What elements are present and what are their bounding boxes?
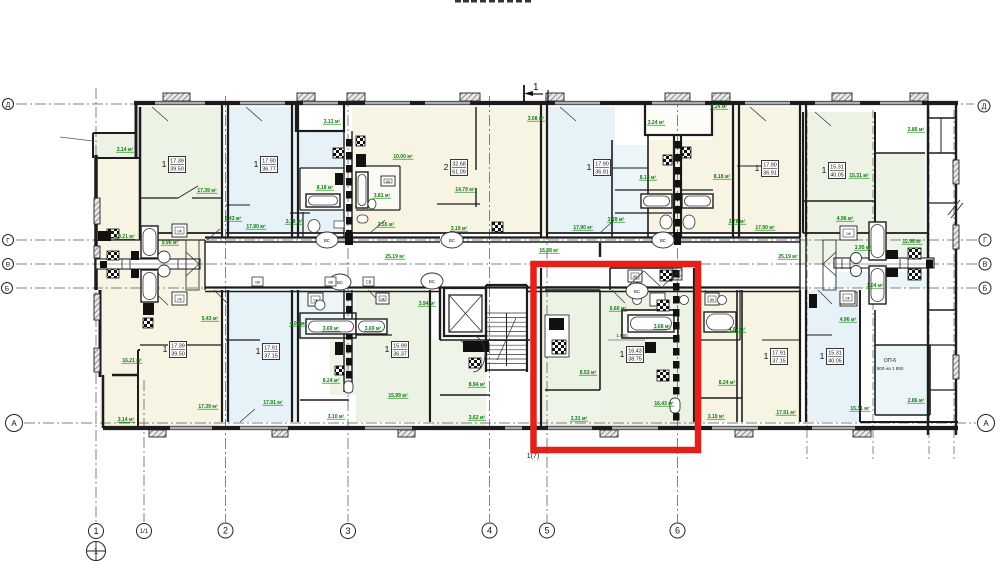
svg-text:39.50: 39.50 <box>170 167 184 173</box>
svg-text:17.91: 17.91 <box>264 346 278 352</box>
svg-text:17.90: 17.90 <box>763 163 777 169</box>
svg-text:Б: Б <box>983 286 988 293</box>
svg-text:15.31: 15.31 <box>828 351 842 357</box>
svg-text:61.09: 61.09 <box>452 170 466 176</box>
svg-text:1(7): 1(7) <box>527 453 539 460</box>
svg-text:ВС: ВС <box>660 238 667 243</box>
svg-text:1: 1 <box>533 82 539 93</box>
svg-text:1: 1 <box>620 349 625 359</box>
svg-text:ВС: ВС <box>449 238 456 243</box>
svg-text:Г: Г <box>6 237 10 244</box>
svg-text:36.37: 36.37 <box>393 352 407 358</box>
svg-text:15.31: 15.31 <box>830 165 844 171</box>
svg-text:ОП-6: ОП-6 <box>884 358 896 364</box>
svg-text:1: 1 <box>822 165 827 175</box>
svg-text:32.68: 32.68 <box>452 162 466 168</box>
svg-text:ок: ок <box>177 228 181 233</box>
svg-text:5: 5 <box>544 526 549 536</box>
svg-text:ок: ок <box>177 296 181 301</box>
svg-text:ок: ок <box>710 297 714 302</box>
svg-text:А: А <box>11 419 17 428</box>
svg-text:17.39: 17.39 <box>171 344 185 350</box>
svg-text:ок: ок <box>845 295 849 300</box>
svg-text:А: А <box>983 419 989 428</box>
svg-text:ок: ок <box>846 231 850 236</box>
svg-text:17.39: 17.39 <box>170 159 184 165</box>
svg-text:2: 2 <box>444 162 449 172</box>
svg-text:39.50: 39.50 <box>171 352 185 358</box>
svg-text:900 на 1 550: 900 на 1 550 <box>877 366 904 371</box>
svg-text:6: 6 <box>675 526 680 536</box>
svg-text:36.91: 36.91 <box>763 171 777 177</box>
svg-text:40.05: 40.05 <box>830 173 844 179</box>
svg-text:40.05: 40.05 <box>828 359 842 365</box>
svg-text:ВС: ВС <box>337 280 344 285</box>
svg-text:1: 1 <box>256 346 261 356</box>
svg-text:ов: ов <box>255 280 260 285</box>
svg-text:17.90: 17.90 <box>595 162 609 168</box>
svg-text:ов: ов <box>328 280 333 285</box>
svg-text:3: 3 <box>345 526 350 536</box>
svg-text:1: 1 <box>764 351 769 361</box>
svg-text:1: 1 <box>755 163 760 173</box>
svg-text:В: В <box>983 262 988 269</box>
svg-text:17.90: 17.90 <box>262 159 276 165</box>
svg-text:1: 1 <box>94 547 99 556</box>
svg-text:36.91: 36.91 <box>595 170 609 176</box>
svg-text:1: 1 <box>254 159 259 169</box>
svg-text:17.91: 17.91 <box>772 351 786 357</box>
svg-text:1.680: 1.680 <box>616 333 628 338</box>
svg-text:ВС: ВС <box>634 289 641 294</box>
svg-text:1: 1 <box>93 526 98 536</box>
svg-text:Г: Г <box>983 238 987 245</box>
svg-text:ок: ок <box>386 179 390 184</box>
svg-text:1: 1 <box>385 344 390 354</box>
svg-text:1: 1 <box>163 344 168 354</box>
svg-text:ВС: ВС <box>429 279 436 284</box>
svg-text:36.77: 36.77 <box>262 167 276 173</box>
svg-text:1: 1 <box>820 351 825 361</box>
svg-text:ок: ок <box>380 296 384 301</box>
svg-text:Д: Д <box>6 101 11 108</box>
svg-text:16.43: 16.43 <box>628 349 642 355</box>
svg-text:1: 1 <box>162 159 167 169</box>
svg-text:В: В <box>6 261 10 268</box>
svg-text:СВ: СВ <box>366 280 372 285</box>
svg-text:2: 2 <box>223 526 228 536</box>
svg-text:37.15: 37.15 <box>772 359 786 365</box>
svg-text:1: 1 <box>587 162 592 172</box>
svg-text:Д: Д <box>982 104 987 111</box>
svg-text:38.75: 38.75 <box>628 357 642 363</box>
svg-text:1/1: 1/1 <box>140 529 149 535</box>
svg-text:15.99: 15.99 <box>393 344 407 350</box>
svg-text:Б: Б <box>5 285 9 292</box>
svg-text:37.15: 37.15 <box>264 354 278 360</box>
svg-text:4: 4 <box>487 526 492 536</box>
svg-text:ВС: ВС <box>324 238 331 243</box>
